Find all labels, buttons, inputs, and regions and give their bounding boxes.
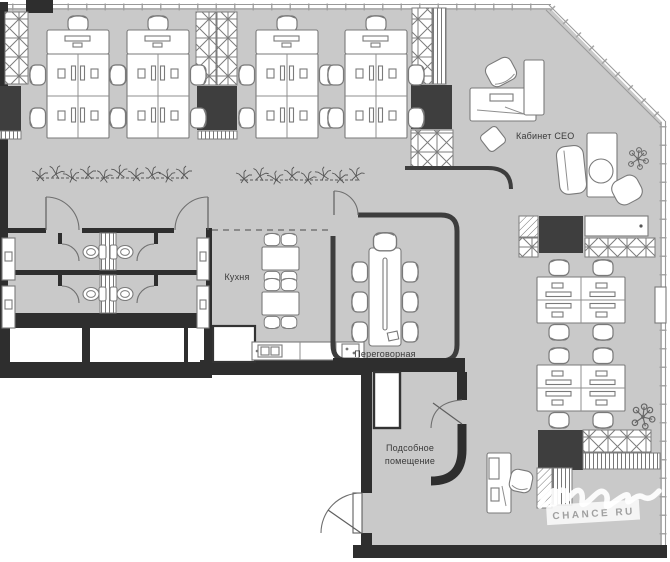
- shaft: [539, 216, 583, 253]
- kitchen-label: Кухня: [224, 272, 249, 282]
- ceo-office-label: Кабинет CEO: [516, 131, 574, 141]
- entrance-door: [353, 493, 362, 533]
- floor-plan-svg: Кухня Переговорная: [0, 0, 670, 562]
- toilet: [110, 245, 133, 259]
- armchair: [556, 145, 588, 196]
- floor-plan: Кухня Переговорная: [0, 0, 670, 562]
- kitchen-fridge: [213, 326, 255, 362]
- meeting-room-label: Переговорная: [354, 349, 416, 359]
- laptop: [387, 331, 398, 341]
- utility-closet: [374, 372, 400, 428]
- office-chair: [508, 468, 534, 494]
- utility-room-label-line1: Подсобное: [386, 443, 434, 453]
- wall-niche: [188, 328, 204, 362]
- shaft: [0, 86, 21, 131]
- utility-room-label-line2: помещение: [385, 456, 435, 466]
- toilet: [83, 287, 106, 301]
- coffee-table: [589, 159, 613, 183]
- radiator: [655, 287, 666, 323]
- toilet: [110, 287, 133, 301]
- toilet: [83, 245, 106, 259]
- wall-niche: [90, 328, 184, 362]
- wall-niche: [10, 328, 82, 362]
- divider-furniture-row: [519, 216, 655, 257]
- sideboard: [585, 216, 648, 236]
- kitchen-counter: [252, 342, 364, 360]
- shaft: [538, 430, 583, 470]
